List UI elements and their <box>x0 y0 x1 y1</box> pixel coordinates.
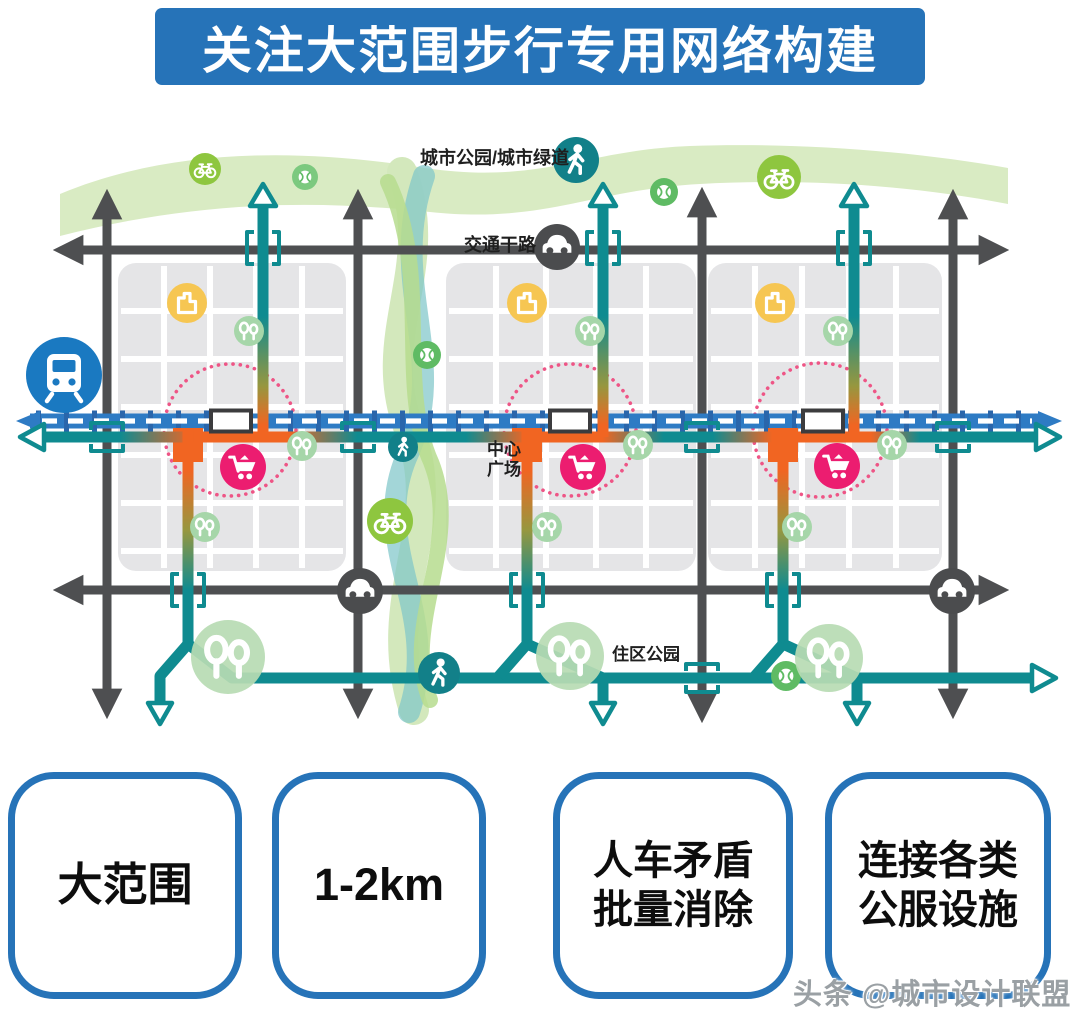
card-facilities-line1: 连接各类 <box>858 837 1018 886</box>
shopping-cart-icon <box>814 443 860 489</box>
card-conflict: 人车矛盾 批量消除 <box>553 772 793 999</box>
card-conflict-line2: 批量消除 <box>593 886 753 935</box>
sports-ball-icon <box>650 178 678 206</box>
bicycle-icon <box>367 498 413 544</box>
building-icon <box>755 283 795 323</box>
car-icon <box>534 224 580 270</box>
pedestrian-icon <box>388 432 418 462</box>
greenway-label: 城市公园/城市绿道 <box>420 149 569 169</box>
trees-icon <box>190 512 220 542</box>
trees-icon <box>287 431 317 461</box>
trees-icon <box>823 316 853 346</box>
trees-icon <box>877 430 907 460</box>
shopping-cart-icon <box>220 444 266 490</box>
card-facilities: 连接各类 公服设施 <box>825 772 1051 999</box>
sports-ball-icon <box>292 164 318 190</box>
watermark: 头条 @城市设计联盟 <box>793 971 1071 1013</box>
card-scope-text: 大范围 <box>57 858 192 913</box>
central-plaza-label: 中心 广场 <box>487 440 521 480</box>
train-icon <box>26 337 102 413</box>
building-icon <box>167 283 207 323</box>
trees-icon <box>234 316 264 346</box>
pedestrian-network-diagram <box>0 0 1080 760</box>
trees-icon <box>623 430 653 460</box>
sports-ball-icon <box>413 341 441 369</box>
central-plaza-label-line1: 中心 <box>487 440 521 460</box>
trees-icon <box>782 512 812 542</box>
car-icon <box>337 568 383 614</box>
trees-icon <box>575 316 605 346</box>
card-facilities-line2: 公服设施 <box>858 886 1018 935</box>
park-trees-icon <box>191 620 265 694</box>
trees-icon <box>532 512 562 542</box>
central-plaza-label-line2: 广场 <box>487 460 521 480</box>
car-icon <box>929 568 975 614</box>
park-trees-icon <box>536 622 604 690</box>
arterial-road-label: 交通干路 <box>464 236 536 256</box>
card-conflict-line1: 人车矛盾 <box>593 837 753 886</box>
shopping-cart-icon <box>560 444 606 490</box>
pedestrian-icon <box>418 652 460 694</box>
bicycle-icon <box>189 153 221 185</box>
infographic-page: 关注大范围步行专用网络构建 <box>0 0 1080 1028</box>
page-title: 关注大范围步行专用网络构建 <box>202 11 878 83</box>
bicycle-icon <box>757 155 801 199</box>
park-trees-icon <box>795 624 863 692</box>
card-distance-text: 1-2km <box>314 858 444 913</box>
residential-park-label: 住区公园 <box>612 646 680 665</box>
card-distance: 1-2km <box>272 772 486 999</box>
title-banner: 关注大范围步行专用网络构建 <box>155 8 925 85</box>
building-icon <box>507 283 547 323</box>
card-scope: 大范围 <box>8 772 242 999</box>
